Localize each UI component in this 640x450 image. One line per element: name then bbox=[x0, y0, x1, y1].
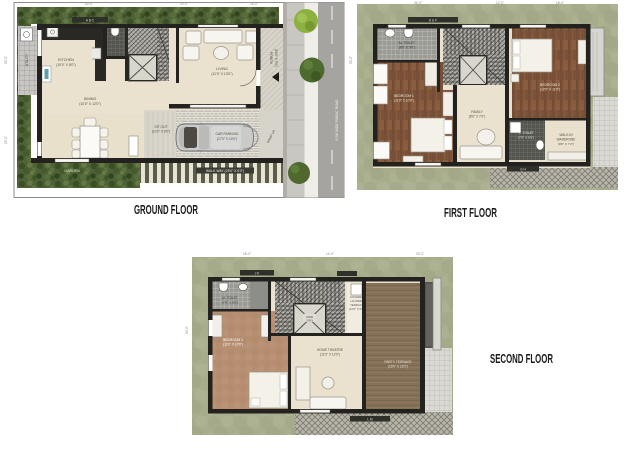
svg-text:14'-0": 14'-0" bbox=[326, 252, 334, 256]
svg-text:DINING: DINING bbox=[84, 97, 97, 101]
svg-text:GROUND FLOOR: GROUND FLOOR bbox=[134, 203, 198, 217]
svg-text:PARTY TERRACE: PARTY TERRACE bbox=[384, 360, 412, 364]
svg-text:(8'0" X 7'2"): (8'0" X 7'2") bbox=[558, 142, 574, 146]
svg-text:WALK-IN: WALK-IN bbox=[559, 133, 573, 137]
svg-text:18'-0": 18'-0" bbox=[243, 252, 251, 256]
svg-text:9.0M WIDE PUBLIC ROAD: 9.0M WIDE PUBLIC ROAD bbox=[335, 99, 339, 141]
svg-text:WALK WAY (25'0" X 6'0"): WALK WAY (25'0" X 6'0") bbox=[206, 169, 244, 173]
svg-text:19'-0": 19'-0" bbox=[416, 252, 424, 256]
svg-text:D E F: D E F bbox=[429, 19, 437, 23]
svg-text:LIVING: LIVING bbox=[216, 67, 228, 71]
svg-text:(7'0" X 5'0"): (7'0" X 5'0") bbox=[518, 136, 534, 140]
svg-text:CAR PARKING: CAR PARKING bbox=[215, 132, 238, 136]
svg-text:OPEN: OPEN bbox=[306, 319, 313, 323]
svg-text:25'-0": 25'-0" bbox=[4, 136, 8, 144]
svg-text:(7'0" X 5'0"): (7'0" X 5'0") bbox=[222, 301, 238, 305]
svg-text:FIRST FLOOR: FIRST FLOOR bbox=[444, 206, 497, 220]
svg-text:30'-0": 30'-0" bbox=[349, 56, 353, 64]
svg-text:G H: G H bbox=[520, 168, 526, 172]
svg-text:PORCH: PORCH bbox=[269, 52, 273, 65]
svg-text:WARDROBE: WARDROBE bbox=[557, 138, 576, 142]
svg-text:(11'0" X 10'0"): (11'0" X 10'0") bbox=[394, 99, 414, 103]
svg-text:(11'0" X 12'0"): (11'0" X 12'0") bbox=[320, 353, 340, 357]
svg-text:(17'0" X 10'0"): (17'0" X 10'0") bbox=[217, 137, 237, 141]
svg-text:UTILITY: UTILITY bbox=[25, 53, 29, 66]
svg-text:(16'0" X 5'0"): (16'0" X 5'0") bbox=[274, 49, 278, 67]
svg-text:A B C: A B C bbox=[86, 19, 95, 23]
svg-text:(11'0" X 10'0"): (11'0" X 10'0") bbox=[223, 343, 243, 347]
svg-text:(10'0" X 6'0"): (10'0" X 6'0") bbox=[152, 130, 170, 134]
svg-text:(11'0" X 13'0"): (11'0" X 13'0") bbox=[211, 72, 232, 76]
svg-text:L M: L M bbox=[367, 418, 373, 422]
svg-text:FAMILY: FAMILY bbox=[471, 110, 483, 114]
svg-text:KITCHEN: KITCHEN bbox=[58, 58, 74, 62]
svg-text:M. TOILET: M. TOILET bbox=[399, 41, 415, 45]
svg-text:BEDROOM 3: BEDROOM 3 bbox=[223, 338, 243, 342]
svg-text:(12'0" X 11'0"): (12'0" X 11'0") bbox=[540, 88, 560, 92]
svg-text:M. TOILET: M. TOILET bbox=[222, 296, 238, 300]
svg-text:SECOND FLOOR: SECOND FLOOR bbox=[490, 352, 553, 366]
svg-text:30'-0": 30'-0" bbox=[4, 56, 8, 64]
svg-text:(10'0" X 12'0"): (10'0" X 12'0") bbox=[79, 102, 100, 106]
svg-text:30'-0": 30'-0" bbox=[185, 326, 189, 334]
svg-text:BEDROOM 2: BEDROOM 2 bbox=[540, 83, 560, 87]
svg-text:HOME THEATRE: HOME THEATRE bbox=[317, 348, 344, 352]
svg-text:(8'6" X 7'0"): (8'6" X 7'0") bbox=[469, 115, 486, 119]
svg-text:BEDROOM 1: BEDROOM 1 bbox=[394, 94, 414, 98]
svg-text:(10'0" X 8'0"): (10'0" X 8'0") bbox=[56, 63, 76, 67]
svg-text:VOID: VOID bbox=[306, 315, 314, 319]
svg-text:SIT OUT: SIT OUT bbox=[155, 125, 168, 129]
svg-text:(8'6" X 5'0"): (8'6" X 5'0") bbox=[399, 46, 416, 50]
svg-text:GARDEN: GARDEN bbox=[64, 169, 80, 173]
svg-text:(19'0" X 22'0"): (19'0" X 22'0") bbox=[388, 365, 408, 369]
